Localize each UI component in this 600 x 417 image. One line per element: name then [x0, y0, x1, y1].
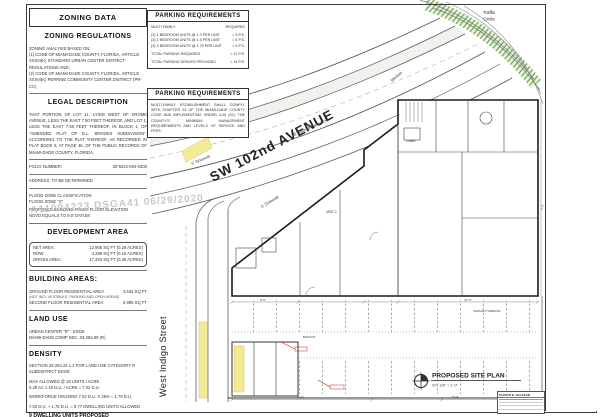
dev-area-value: 17,203 SQ FT (0.39 ACRES) [89, 257, 143, 263]
parking1-row-value: = 14 P.S. [230, 60, 245, 65]
building-area-row: SECOND FLOOR RESIDENTIAL AREA 5,995 SQ F… [29, 300, 147, 306]
zoning-data-title: ZONING DATA [30, 12, 146, 23]
parking-requirements-box-1: PARKING REQUIREMENTS MULTI FAMILY REQUIR… [147, 10, 249, 69]
parking1-row-label: TOTAL PARKING REQUIRED [151, 52, 200, 57]
divider [29, 174, 147, 175]
divider [29, 159, 147, 160]
signature-name: FAUSTO E. SALAZAR [498, 392, 544, 398]
building-areas-title: BUILDING AREAS: [29, 275, 147, 286]
land-use-line: MIAMI-DADE CDMP SEC. 33-284.99 (R) [29, 335, 147, 341]
building-area-label: SECOND FLOOR RESIDENTIAL AREA [29, 300, 103, 306]
development-area-title: DEVELOPMENT AREA [29, 228, 147, 239]
parking1-row-label: TOTAL PARKING SPACES PROVIDED [151, 60, 216, 65]
drawing-sheet: Traffic Circle SW 102nd AVENUE Median 18… [0, 0, 600, 417]
divider [29, 270, 147, 271]
building-area-label: GROUND FLOOR RESIDENTIAL AREA [29, 289, 104, 295]
building-area-row: GROUND FLOOR RESIDENTIAL AREA 3,532 SQ F… [29, 289, 147, 295]
divider [29, 188, 147, 189]
dev-area-row: GROSS AREA: 17,203 SQ FT (0.39 ACRES) [33, 257, 143, 263]
parking1-row-value: = 12 P.S. [230, 52, 245, 57]
divider [29, 345, 147, 346]
signature-block: FAUSTO E. SALAZAR [497, 391, 545, 414]
legal-description-title: LEGAL DESCRIPTION [29, 98, 147, 109]
parking1-title: PARKING REQUIREMENTS [148, 11, 248, 22]
folio-row: FOLIO NUMBER: 30-5022-004-0300 [29, 164, 147, 170]
parking1-row-value: = 5 P.S. [232, 44, 245, 49]
divider [29, 93, 147, 94]
zoning-regulations-text: ZONING ANALYSIS BASED ON: (1) CODE OF MI… [29, 46, 147, 90]
density-title: DENSITY [29, 350, 147, 361]
parking1-body: MULTI FAMILY REQUIRED (2) 1 BEDROOM UNIT… [148, 22, 248, 68]
building-area-value: 5,995 SQ FT [123, 300, 147, 306]
zoning-data-header-box: ZONING DATA [29, 8, 147, 27]
parking1-row: TOTAL PARKING REQUIRED = 12 P.S. [151, 52, 245, 57]
parking2-text: MULTI-FAMILY ESTABLISHMENT SHALL COMPLY … [148, 100, 248, 137]
signature-detail-lines [499, 399, 543, 412]
density-line: 7.02 D.U. + 1.75 D.U. = 8.77 DWELLING UN… [29, 404, 147, 410]
building-area-value: 3,532 SQ FT [123, 289, 147, 295]
dev-area-label: GROSS AREA: [33, 257, 62, 263]
density-line: WORKFORCE HOUSING 7.02 D.U. X 25% = 1.75… [29, 394, 147, 400]
title-block [545, 4, 598, 411]
folio-label: FOLIO NUMBER: [29, 164, 62, 170]
zoning-regulations-title: ZONING REGULATIONS [29, 32, 147, 43]
density-proposed: 9 DWELLING UNITS PROPOSED [29, 413, 147, 417]
parking2-title: PARKING REQUIREMENTS [148, 89, 248, 100]
address-line: ADDRESS: TO BE DETERMINED [29, 178, 147, 184]
parking-requirements-box-2: PARKING REQUIREMENTS MULTI-FAMILY ESTABL… [147, 88, 249, 138]
divider [29, 310, 147, 311]
parking1-col-header: REQUIRED [226, 25, 245, 30]
zoning-line: XXXIII(K) PERRINE COMMUNITY CENTER DISTR… [29, 77, 147, 90]
legal-description-text: THAT PORTION OF LOT 11, LYING WEST OF KR… [29, 112, 147, 156]
folio-value: 30-5022-004-0300 [113, 164, 147, 170]
parking1-row-label: MULTI FAMILY [151, 25, 176, 30]
parking1-row-label: (3) 3 BEDROOM UNITS @ 1.75 PER UNIT [151, 44, 222, 49]
development-area-box: NET AREA: 12,905 SQ FT (0.29 ACRES) ROW:… [29, 242, 147, 267]
land-use-title: LAND USE [29, 315, 147, 326]
parking1-row: TOTAL PARKING SPACES PROVIDED = 14 P.S. [151, 60, 245, 65]
divider [29, 223, 147, 224]
